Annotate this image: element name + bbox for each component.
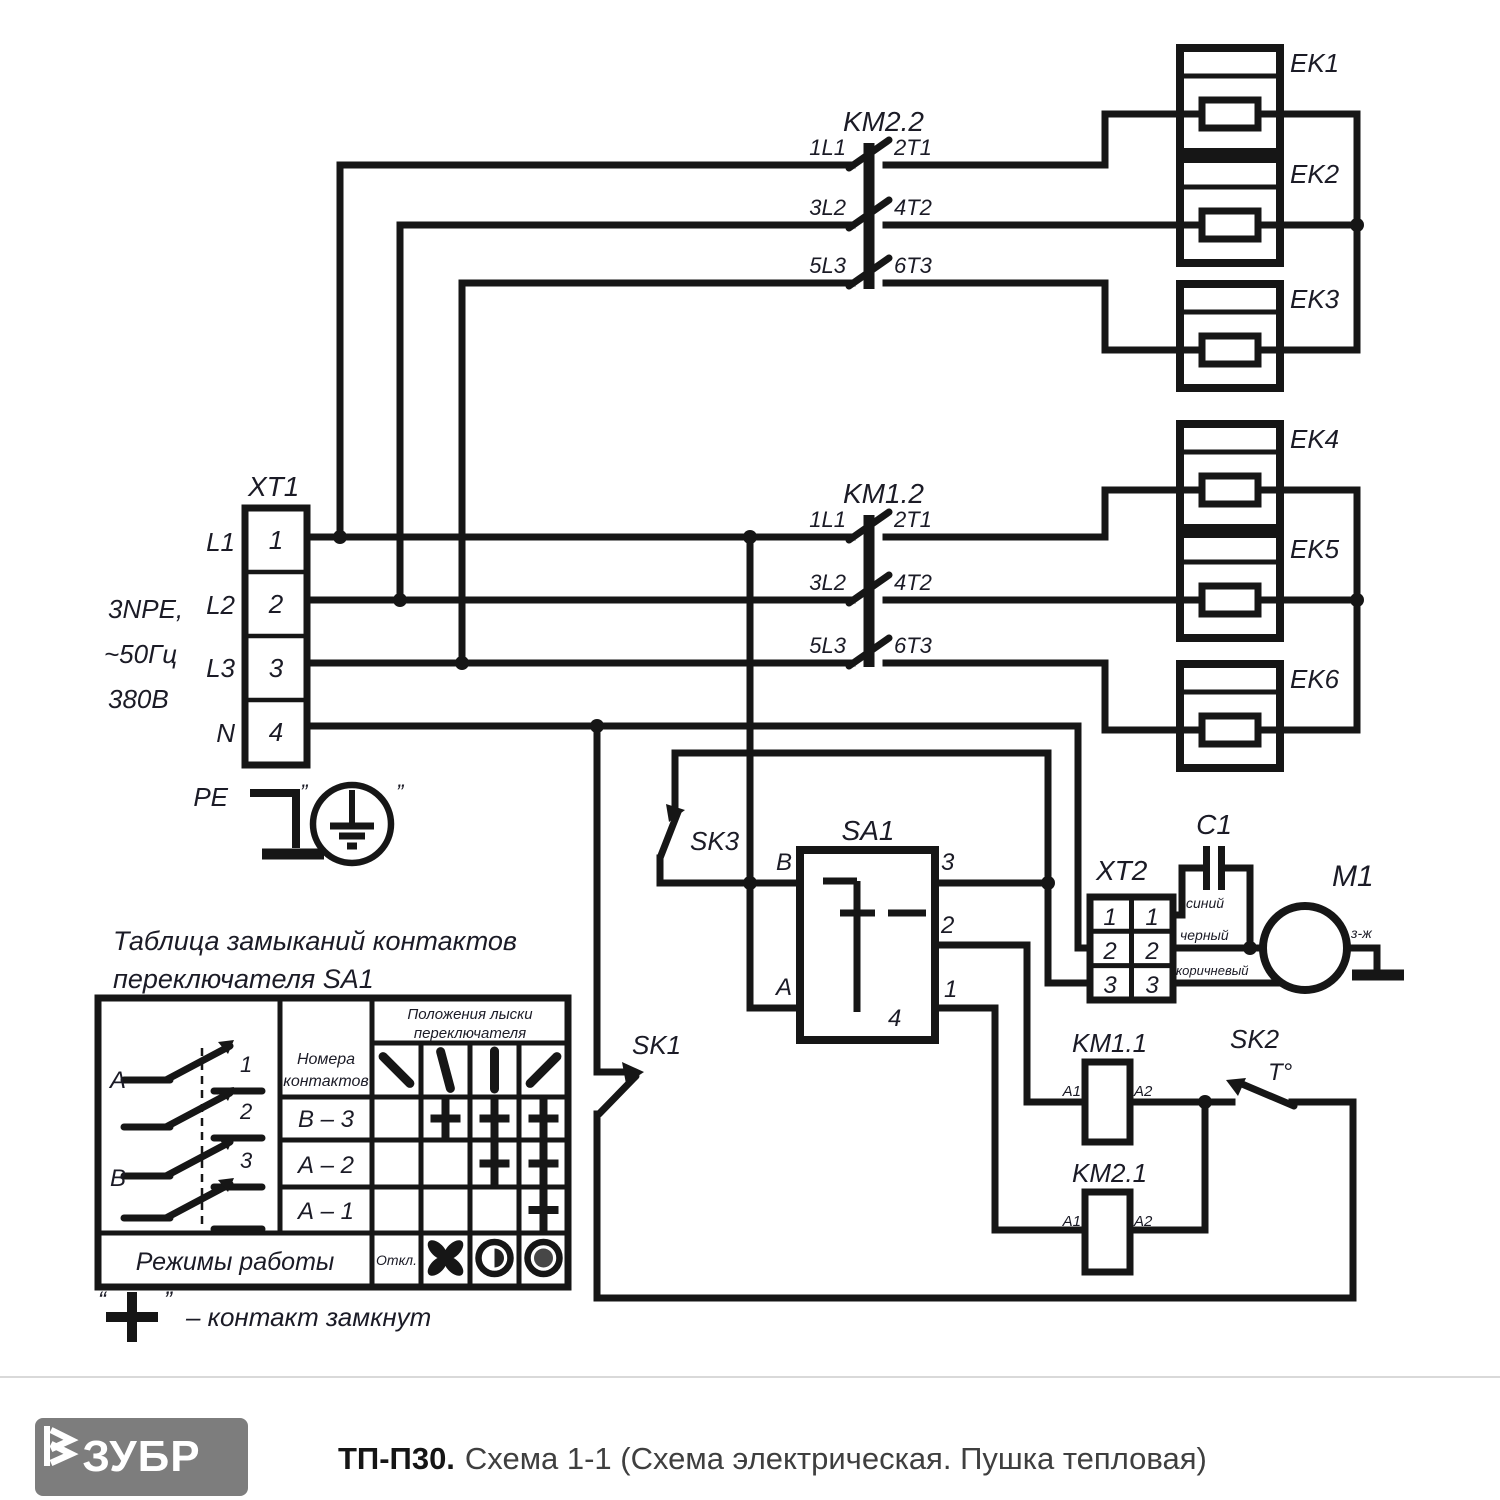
km12-label: KM1.2 — [843, 478, 924, 509]
pole-group-b-label: В — [110, 1165, 126, 1192]
xt2-r2: 2 — [1144, 938, 1158, 965]
document-title: ТП-П30.Схема 1-1 (Схема электрическая. П… — [338, 1441, 1207, 1477]
footnote-quote-close: ” — [164, 1287, 173, 1314]
positions-header-1: Положения лыски — [407, 1006, 533, 1023]
wire-coil-return — [597, 1102, 1353, 1298]
pe-ground: PE ” ” — [193, 780, 405, 863]
pe-quote-right: ” — [396, 780, 405, 805]
km21-label: KM2.1 — [1072, 1158, 1147, 1188]
km11-a2: A2 — [1133, 1083, 1153, 1100]
wire-color-blue: синий — [1186, 895, 1224, 911]
wire-sk1-top — [597, 726, 630, 1072]
modes-label: Режимы работы — [136, 1248, 335, 1276]
electrical-schematic: XT1 1 2 3 4 L1 L2 L3 N 3NPE, ~50Гц 380В … — [0, 0, 1500, 1395]
km22-4t2: 4T2 — [894, 195, 932, 220]
wire-sa1-pin2-km11 — [935, 945, 1085, 1102]
supply-spec-1: 3NPE, — [108, 594, 183, 624]
xt1-terminal-2: 2 — [268, 589, 284, 619]
sa1-label: SA1 — [842, 815, 895, 846]
c1-capacitor: C1 — [1196, 809, 1232, 890]
wire-km22-ek3 — [886, 283, 1180, 350]
km11-label: KM1.1 — [1072, 1028, 1147, 1058]
km21-coil: KM2.1 A1 A2 — [1062, 1158, 1153, 1272]
sa1-pin-b: B — [776, 849, 792, 876]
contacts-header-1: Номера — [297, 1051, 355, 1068]
mode-full-heat-icon — [528, 1242, 560, 1274]
pole-group-a-label: А — [108, 1067, 126, 1094]
sa1-pin-3: 3 — [941, 849, 955, 876]
heater-ek2: EK2 — [1180, 159, 1340, 263]
km21-a2: A2 — [1133, 1213, 1153, 1230]
line-label-l3: L3 — [206, 653, 235, 683]
line-label-l2: L2 — [206, 590, 235, 620]
pole-diagram: А В 1 2 3 — [108, 1040, 262, 1229]
km12-4t2: 4T2 — [894, 570, 932, 595]
m1-label: M1 — [1332, 860, 1374, 893]
line-label-n: N — [216, 718, 235, 748]
off-mode-label: Откл. — [376, 1252, 417, 1268]
km22-2t1: 2T1 — [893, 135, 932, 160]
ek5-label: EK5 — [1290, 534, 1340, 564]
mode-fan-icon — [424, 1237, 466, 1279]
table-footnote: “ ” – контакт замкнут — [98, 1287, 431, 1342]
pole-number-1: 1 — [240, 1052, 252, 1077]
pole-number-3: 3 — [240, 1148, 253, 1173]
closed-contact-marks — [431, 1098, 559, 1232]
km22-3l2: 3L2 — [809, 195, 846, 220]
wire-l1-tap-km22 — [340, 165, 852, 537]
sa1-pin-4: 4 — [888, 1005, 901, 1032]
heater-ek1: EK1 — [1180, 48, 1339, 152]
row-a2-label: А – 2 — [296, 1152, 354, 1179]
xt1-label: XT1 — [247, 471, 299, 502]
wire-color-black: черный — [1180, 927, 1229, 943]
supply-spec-3: 380В — [108, 684, 169, 714]
footnote-quote-open: “ — [98, 1287, 108, 1314]
wire-motor-feed — [1048, 883, 1090, 983]
sk1-label: SK1 — [632, 1030, 681, 1060]
sa1-mode-switch: SA1 B A 3 2 1 4 — [774, 815, 957, 1040]
zubr-logo: ЗУБР — [35, 1418, 248, 1496]
km21-a1: A1 — [1062, 1213, 1081, 1230]
xt2-label: XT2 — [1095, 855, 1148, 886]
xt2-r3: 3 — [1145, 972, 1159, 999]
closed-contact-plus-icon — [106, 1292, 158, 1342]
km12-1l1: 1L1 — [809, 507, 846, 532]
ek3-label: EK3 — [1290, 284, 1340, 314]
table-title-line1: Таблица замыканий контактов — [113, 926, 517, 956]
contacts-header-2: контактов — [283, 1073, 368, 1090]
km11-coil: KM1.1 A1 A2 — [1062, 1028, 1153, 1142]
m1-motor: M1 з-ж — [1263, 860, 1404, 990]
xt1-terminal-3: 3 — [269, 653, 284, 683]
sk3-label: SK3 — [690, 826, 740, 856]
xt2-r1: 1 — [1145, 904, 1158, 931]
wire-sa1-pin1-km21 — [935, 1008, 1085, 1230]
xt1-terminal-block: XT1 1 2 3 4 L1 L2 L3 N 3NPE, ~50Гц 380В — [104, 471, 307, 765]
pe-label: PE — [193, 782, 228, 812]
row-b3-label: В – 3 — [298, 1106, 355, 1133]
zubr-logo-icon — [35, 1418, 79, 1474]
km12-6t3: 6T3 — [894, 633, 933, 658]
sk2-switch: SK2 Т° — [1226, 1024, 1294, 1106]
row-a1-label: А – 1 — [296, 1198, 354, 1225]
heater-ek5: EK5 — [1180, 534, 1340, 638]
supply-spec-2: ~50Гц — [104, 639, 177, 669]
m1-ground-wire-label: з-ж — [1350, 925, 1373, 941]
sa1-pin-a: A — [774, 974, 792, 1001]
wire-ek456-leads — [1280, 490, 1357, 730]
footer-divider — [0, 1376, 1500, 1378]
heater-ek3: EK3 — [1180, 284, 1340, 388]
km22-contact-block: KM2.2 1L1 2T1 3L2 4T2 5L3 6T3 — [809, 106, 932, 289]
position-icon-1 — [441, 1052, 451, 1089]
xt2-l2: 2 — [1102, 938, 1116, 965]
wire-ek123-leads — [1280, 114, 1357, 350]
sa1-pin-2: 2 — [940, 912, 954, 939]
xt1-terminal-1: 1 — [269, 525, 283, 555]
wire-l3-tap-km22 — [462, 283, 852, 663]
model-name: ТП-П30. — [338, 1441, 455, 1476]
km22-1l1: 1L1 — [809, 135, 846, 160]
km12-contact-block: KM1.2 1L1 2T1 3L2 4T2 5L3 6T3 — [809, 478, 932, 667]
xt2-l3: 3 — [1103, 972, 1117, 999]
km11-a1: A1 — [1062, 1083, 1081, 1100]
line-label-l1: L1 — [206, 527, 235, 557]
schematic-page: XT1 1 2 3 4 L1 L2 L3 N 3NPE, ~50Гц 380В … — [0, 0, 1500, 1500]
sk3-switch: SK3 — [660, 804, 740, 858]
km22-label: KM2.2 — [843, 106, 924, 137]
km12-5l3: 5L3 — [809, 633, 846, 658]
footnote-text: – контакт замкнут — [185, 1302, 431, 1332]
sk2-label: SK2 — [1230, 1024, 1280, 1054]
km12-2t1: 2T1 — [893, 507, 932, 532]
position-icon-3 — [530, 1057, 557, 1084]
km22-5l3: 5L3 — [809, 253, 846, 278]
pole-number-2: 2 — [239, 1099, 252, 1124]
brand-name: ЗУБР — [82, 1432, 200, 1482]
xt2-l1: 1 — [1103, 904, 1116, 931]
wire-phase-sa1-a — [750, 537, 800, 1008]
xt1-terminal-4: 4 — [269, 717, 283, 747]
heater-ek4: EK4 — [1180, 424, 1339, 528]
table-title-line2: переключателя SA1 — [113, 964, 374, 994]
ek6-label: EK6 — [1290, 664, 1340, 694]
wire-color-brown: коричневый — [1176, 963, 1249, 978]
km12-3l2: 3L2 — [809, 570, 846, 595]
mode-half-heat-icon — [479, 1242, 511, 1274]
sk2-temp-label: Т° — [1268, 1059, 1293, 1086]
c1-label: C1 — [1196, 809, 1232, 840]
wire-km12-ek6 — [886, 663, 1180, 730]
position-icon-off — [383, 1057, 410, 1084]
positions-header-2: переключателя — [414, 1025, 526, 1042]
km22-6t3: 6T3 — [894, 253, 933, 278]
ek1-label: EK1 — [1290, 48, 1339, 78]
heater-ek6: EK6 — [1180, 664, 1340, 768]
scheme-subtitle: Схема 1-1 (Схема электрическая. Пушка те… — [465, 1441, 1207, 1476]
heaters: EK1 EK2 EK3 EK4 EK5 EK6 — [1180, 48, 1340, 768]
ek2-label: EK2 — [1290, 159, 1340, 189]
pe-quote-left: ” — [300, 780, 309, 805]
earth-icon — [313, 785, 391, 863]
sa1-contact-table: Таблица замыканий контактов переключател… — [98, 926, 568, 1342]
ek4-label: EK4 — [1290, 424, 1339, 454]
wire-motor-ground — [1347, 948, 1377, 971]
sa1-pin-1: 1 — [944, 976, 957, 1003]
